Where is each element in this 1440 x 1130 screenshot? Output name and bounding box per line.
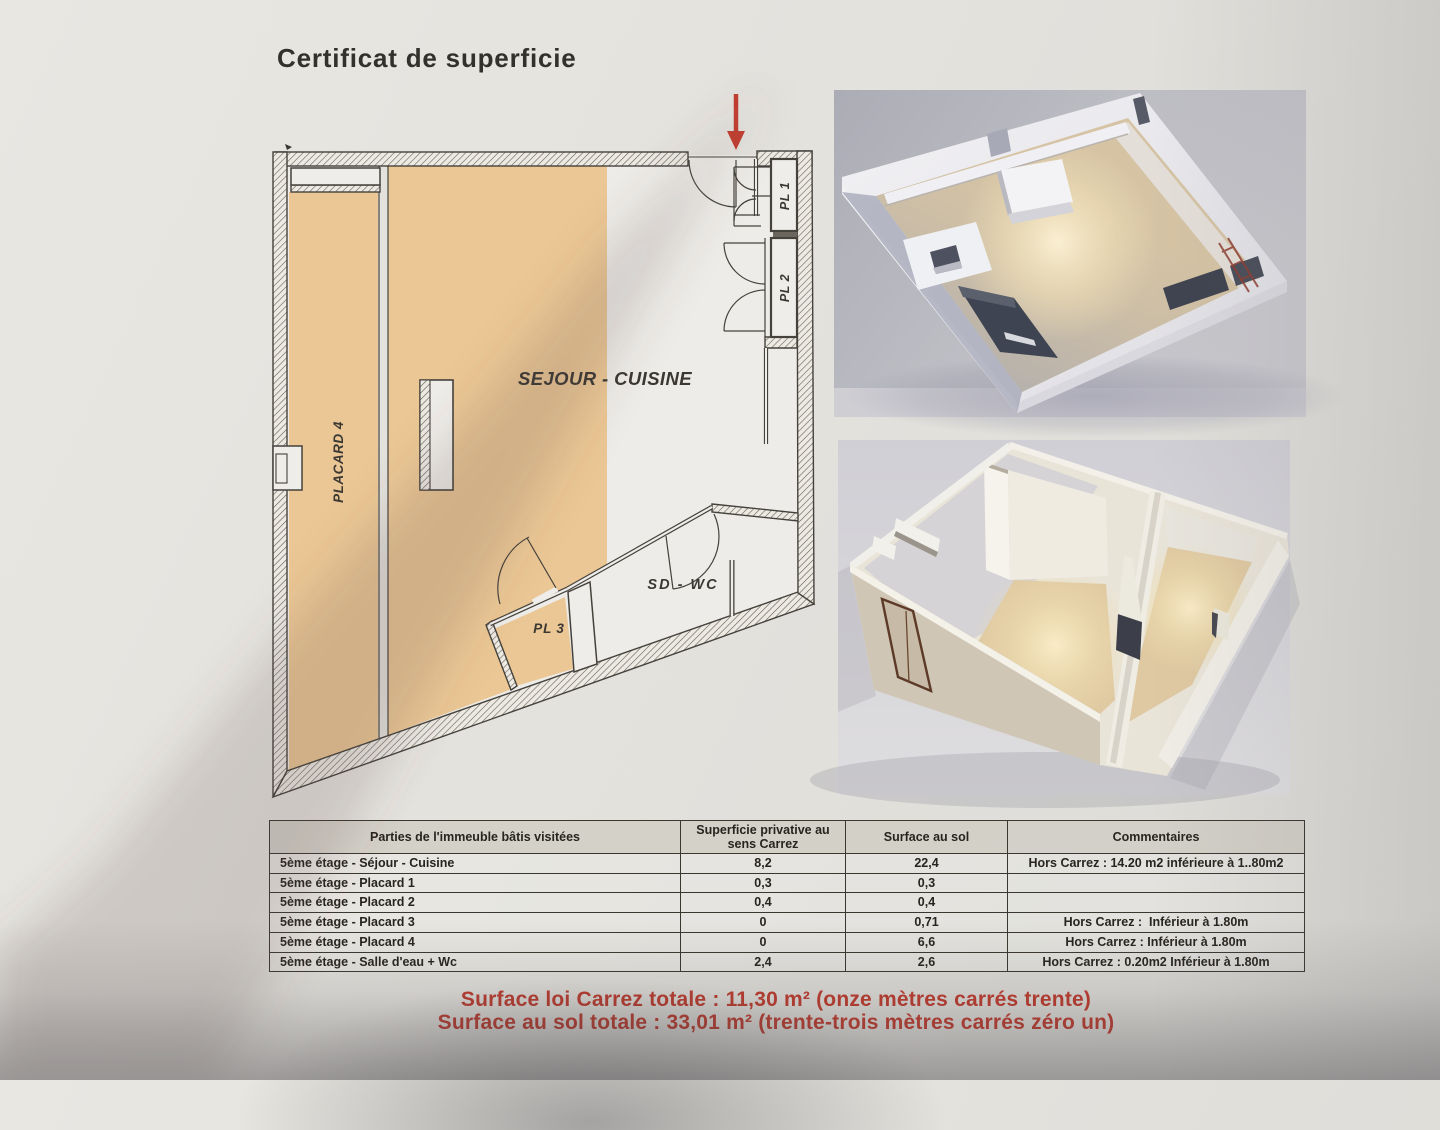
svg-text:SEJOUR - CUISINE: SEJOUR - CUISINE: [518, 368, 692, 389]
svg-text:SD - WC: SD - WC: [647, 577, 718, 593]
svg-text:PL 2: PL 2: [778, 274, 792, 302]
svg-text:PL 1: PL 1: [778, 182, 792, 210]
svg-text:PL 3: PL 3: [533, 621, 564, 636]
svg-text:PLACARD 4: PLACARD 4: [331, 421, 346, 503]
